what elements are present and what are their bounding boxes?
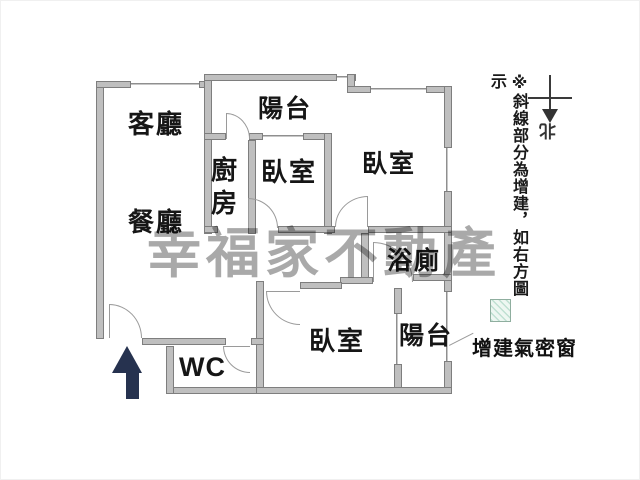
door-arc-bedroom-bottom [266, 291, 300, 325]
wall-segment [394, 288, 402, 314]
hatch-legend-swatch [490, 299, 511, 322]
wall-segment [96, 81, 104, 339]
window [263, 133, 303, 140]
wall-segment [166, 387, 264, 394]
wall-segment [251, 338, 264, 345]
room-label-living: 客廳 [128, 104, 184, 141]
wall-segment [249, 133, 263, 140]
wall-segment [204, 133, 226, 140]
entrance-arrow-stem [126, 372, 139, 399]
wall-segment [142, 338, 226, 345]
wall-segment [394, 364, 402, 389]
window [131, 81, 199, 88]
room-label-balcony-top: 陽台 [258, 89, 312, 125]
wall-segment [444, 86, 452, 148]
room-label-wc: WC [179, 352, 226, 383]
wall-segment [256, 387, 452, 394]
door-arc-entrance [109, 304, 142, 338]
room-label-balcony-bottom: 陽台 [399, 316, 453, 352]
door-arc-kitchen-balcony [226, 113, 250, 139]
floor-plan: 客廳 餐廳 陽台 廚房 臥室 臥室 浴廁 臥室 陽台 WC 幸福家不動產 ※斜線… [0, 0, 640, 480]
entrance-arrow-icon [112, 346, 142, 373]
compass-north-label: 北 [539, 120, 556, 145]
window [444, 148, 452, 191]
window [371, 86, 426, 93]
watermark-text: 幸福家不動產 [147, 209, 501, 288]
wall-segment [204, 74, 337, 81]
room-label-bedroom-bottom: 臥室 [309, 321, 365, 358]
added-window-label: 增建氣密窗 [472, 332, 577, 361]
door-arc-wc [223, 346, 250, 373]
wall-segment [347, 86, 371, 93]
compass-shaft-icon [549, 75, 551, 111]
wall-segment [96, 81, 131, 88]
room-label-bedroom-right: 臥室 [362, 144, 416, 180]
room-label-bedroom-mid: 臥室 [261, 152, 317, 189]
wall-segment [166, 346, 174, 394]
